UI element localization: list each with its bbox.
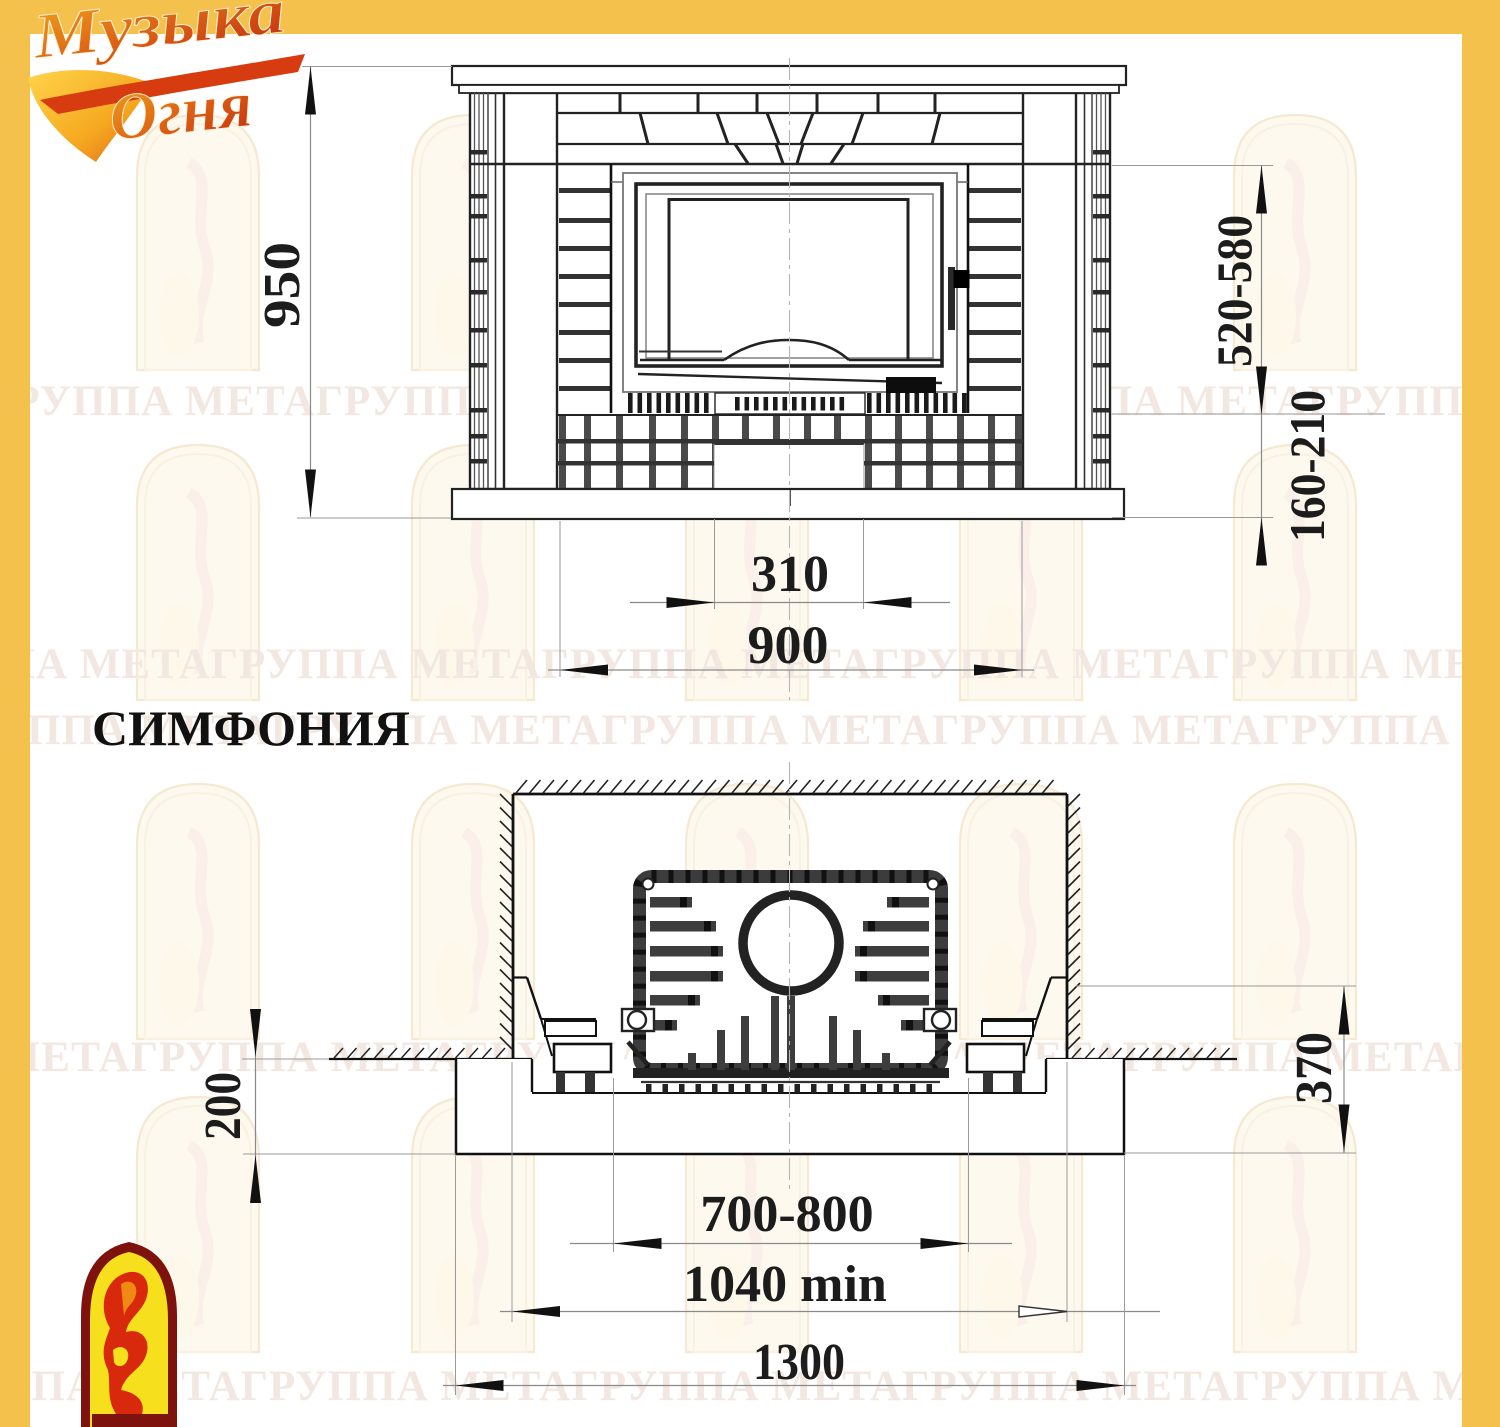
svg-text:900: 900 [748,615,829,675]
svg-text:520-580: 520-580 [1206,215,1262,367]
svg-text:1300: 1300 [753,1334,845,1391]
svg-text:ГРУППА МЕТАГРУППА МЕТАГРУППА М: ГРУППА МЕТАГРУППА МЕТАГРУППА МЕТАГРУППА … [0,1363,1500,1410]
svg-text:160-210: 160-210 [1279,390,1335,542]
svg-text:310: 310 [751,546,829,603]
svg-text:700-800: 700-800 [700,1186,873,1243]
svg-text:Огня: Огня [106,67,256,155]
svg-text:200: 200 [195,1072,252,1140]
svg-text:370: 370 [1286,1032,1343,1104]
svg-text:СИМФОНИЯ: СИМФОНИЯ [92,700,410,756]
svg-text:950: 950 [254,242,311,328]
svg-text:1040 min: 1040 min [683,1256,887,1313]
